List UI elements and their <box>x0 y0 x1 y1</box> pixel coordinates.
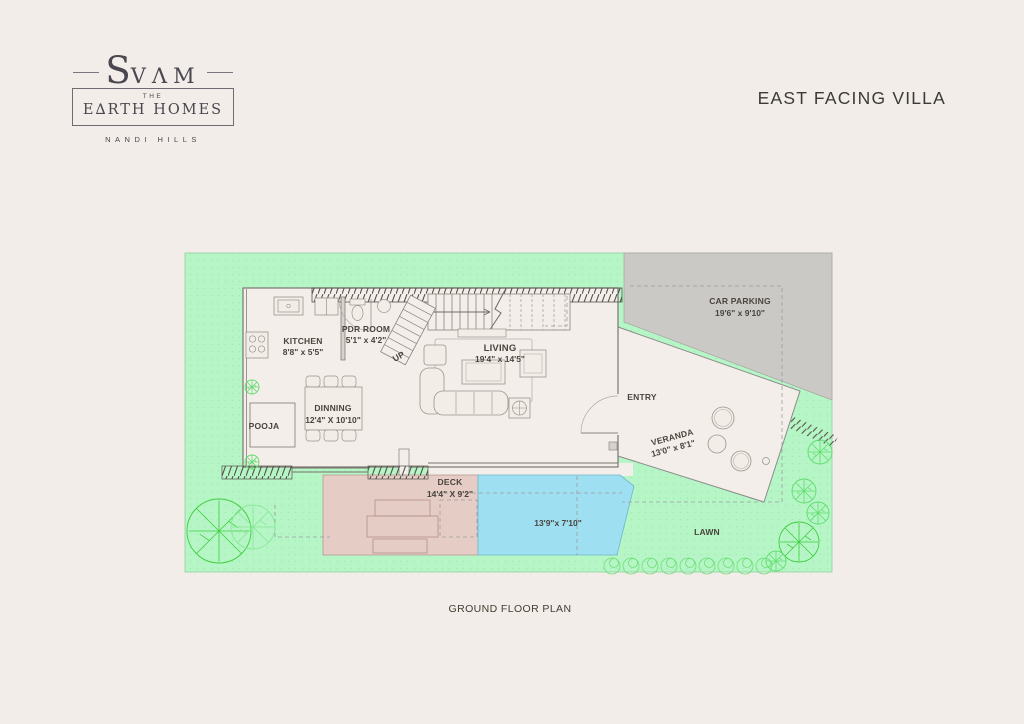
wash-basin <box>378 300 391 313</box>
round-table <box>712 407 734 429</box>
dining-chair <box>342 376 356 387</box>
dining-chair <box>306 376 320 387</box>
plant-icon <box>245 455 259 469</box>
wc-tank <box>350 299 365 305</box>
kitchen-label: KITCHEN <box>283 336 322 346</box>
wc-bowl <box>352 306 363 321</box>
round-table <box>731 451 751 471</box>
south-wall-hatch-mid <box>368 466 428 479</box>
deck-label: DECK <box>438 477 464 487</box>
veranda-column <box>763 458 770 465</box>
sofa-bottom <box>434 391 508 415</box>
entry-label: ENTRY <box>627 392 657 402</box>
deck-surface <box>323 475 478 555</box>
dining-chair <box>306 430 320 441</box>
armchair <box>424 345 446 365</box>
tree-icon <box>808 440 832 464</box>
south-wall-hatch-left <box>222 466 292 479</box>
deck-dim: 14'4" X 9'2" <box>427 489 473 499</box>
pdr-room-dim: 5'1" x 4'2" <box>346 335 386 345</box>
car-parking-label: CAR PARKING <box>709 296 771 306</box>
pool-water <box>478 475 634 555</box>
living-dim: 19'4" x 14'5" <box>475 354 525 364</box>
pool-area <box>478 475 634 555</box>
tree-icon <box>807 502 829 524</box>
pooja-label: POOJA <box>249 421 280 431</box>
tree-icon <box>231 505 275 549</box>
tree-icon <box>766 551 786 571</box>
drawing-caption: GROUND FLOOR PLAN <box>0 603 1020 615</box>
dining-chair <box>324 376 338 387</box>
stove <box>246 332 268 358</box>
console <box>458 329 506 337</box>
page: SVΛM THE E∆RTH HOMES NANDI HILLS EAST FA… <box>0 0 1024 724</box>
pdr-room-label: PDR ROOM <box>342 324 390 334</box>
dinning-label: DINNING <box>314 403 351 413</box>
car-parking-dim: 19'6" x 9'10" <box>715 308 765 318</box>
tree-icon <box>792 479 816 503</box>
round-table <box>708 435 726 453</box>
pool-dim: 13'9"x 7'10" <box>534 518 582 528</box>
dining-chair <box>342 430 356 441</box>
kitchen-dim: 8'8" x 5'5" <box>283 347 323 357</box>
lawn-label: LAWN <box>694 527 720 537</box>
plant-icon <box>245 380 259 394</box>
living-label: LIVING <box>484 343 517 354</box>
door-opening <box>614 394 622 435</box>
floor-plan-canvas: KITCHEN 8'8" x 5'5" PDR ROOM 5'1" x 4'2"… <box>0 0 1024 724</box>
wall-pillar <box>609 442 617 450</box>
dinning-dim: 12'4" X 10'10" <box>305 415 361 425</box>
dining-chair <box>324 430 338 441</box>
